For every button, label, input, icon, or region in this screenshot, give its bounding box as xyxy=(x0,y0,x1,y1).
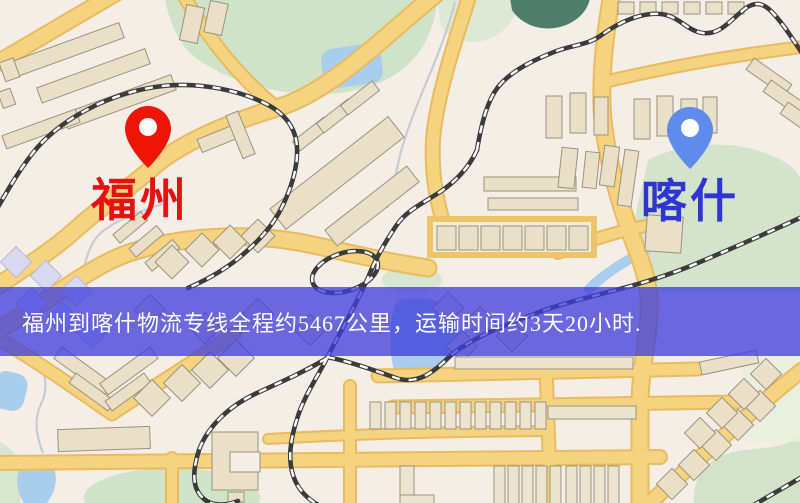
map-background xyxy=(0,0,800,503)
destination-label: 喀什 xyxy=(641,178,739,226)
map-container: 福州 喀什 福州到喀什物流专线全程约5467公里，运输时间约3天20小时. xyxy=(0,0,800,503)
route-info-banner: 福州到喀什物流专线全程约5467公里，运输时间约3天20小时. xyxy=(0,287,800,356)
destination-pin-icon xyxy=(667,107,713,169)
route-info-text: 福州到喀什物流专线全程约5467公里，运输时间约3天20小时. xyxy=(0,306,642,338)
origin-pin-icon xyxy=(125,106,171,168)
origin-pin xyxy=(125,106,171,168)
destination-pin xyxy=(667,107,713,169)
origin-label: 福州 xyxy=(91,177,189,225)
